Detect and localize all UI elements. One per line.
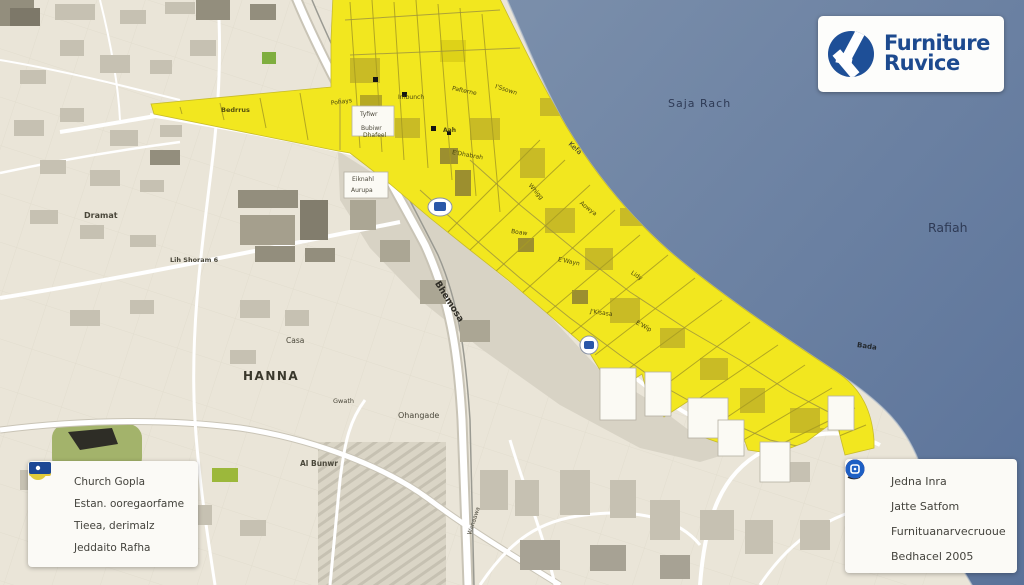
- legend-label: Jeddaito Rafha: [74, 542, 150, 554]
- legend-label: Jatte Satfom: [891, 500, 959, 513]
- legend-label: Furnituanarvecruoue: [891, 525, 1006, 538]
- legend-label: Church Gopla: [74, 476, 145, 488]
- brand-logo-icon: [828, 31, 874, 77]
- legend-right: Jedna Inra Jatte Satfom Furnituanarvecru…: [845, 459, 1017, 573]
- legend-row: Bedhacel 2005: [857, 544, 1005, 569]
- legend-row: Church Gopla: [40, 471, 186, 493]
- legend-row: Jedna Inra: [857, 469, 1005, 494]
- brand-name-line2: Ruvice: [884, 54, 990, 74]
- green-patch: [212, 468, 238, 482]
- legend-left: Church Gopla Estan. ooregaorfame Tieea, …: [28, 461, 198, 567]
- legend-row: Tieea, derimalz: [40, 515, 186, 537]
- map-screenshot: Saja Rach Rafiah HANNA Dramat Lih Shoram…: [0, 0, 1024, 585]
- legend-row: Jeddaito Rafha: [40, 537, 186, 559]
- legend-row: Furnituanarvecruoue: [857, 519, 1005, 544]
- legend-label: Bedhacel 2005: [891, 550, 973, 563]
- legend-row: Jatte Satfom: [857, 494, 1005, 519]
- legend-row: Estan. ooregaorfame: [40, 493, 186, 515]
- green-patch: [262, 52, 276, 64]
- brand-logo-card: Furniture Ruvice: [818, 16, 1004, 92]
- legend-label: Tieea, derimalz: [74, 520, 155, 532]
- legend-label: Jedna Inra: [891, 475, 947, 488]
- legend-label: Estan. ooregaorfame: [74, 498, 184, 510]
- brand-logo-text: Furniture Ruvice: [884, 34, 990, 74]
